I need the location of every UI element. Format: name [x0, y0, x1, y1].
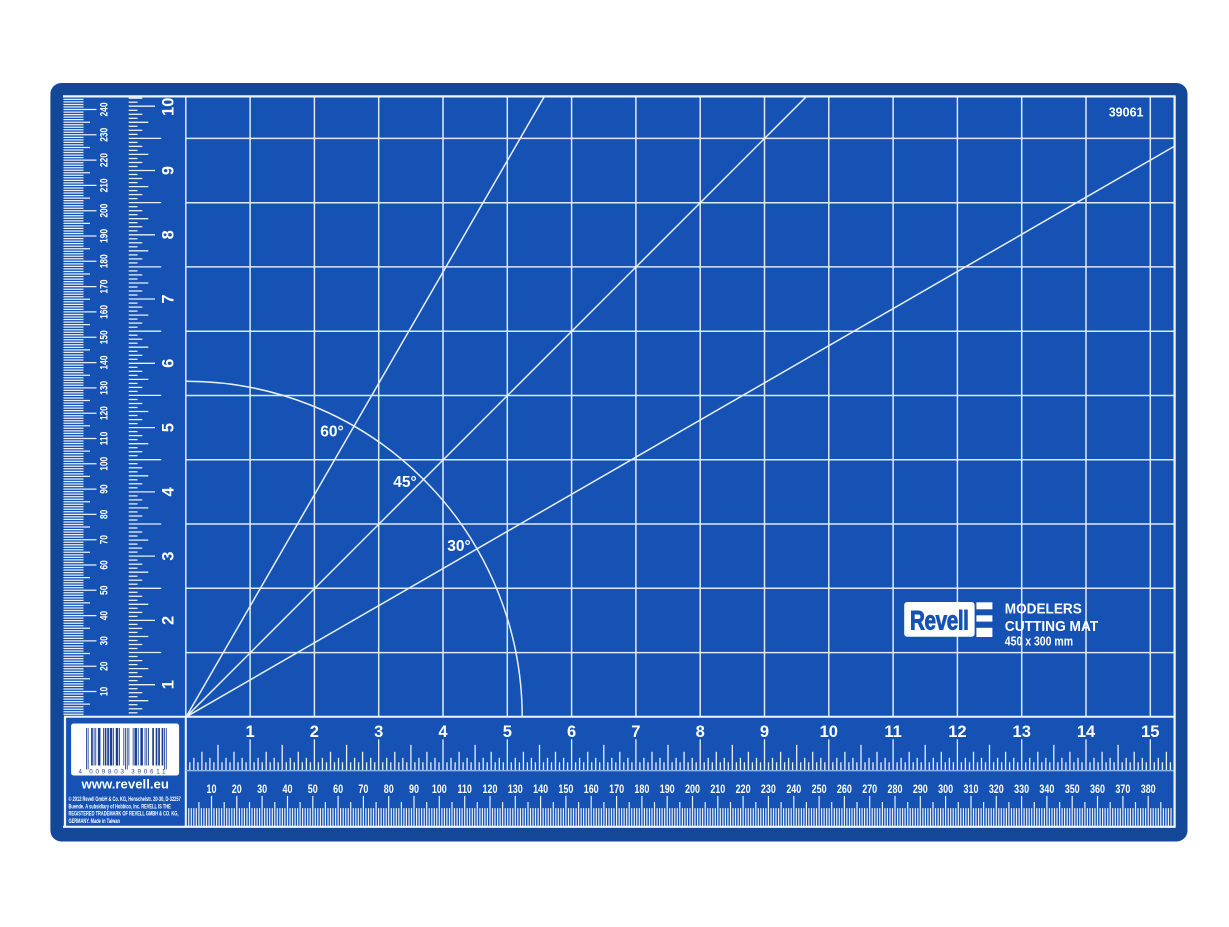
svg-text:180: 180 — [634, 784, 649, 796]
svg-text:4 009803 390611: 4 009803 390611 — [79, 768, 169, 775]
svg-text:370: 370 — [1115, 784, 1130, 796]
svg-text:150: 150 — [98, 330, 110, 344]
svg-text:12: 12 — [948, 723, 966, 741]
svg-text:13: 13 — [1013, 723, 1031, 741]
svg-text:5: 5 — [160, 423, 178, 432]
svg-text:150: 150 — [558, 784, 573, 796]
svg-text:30: 30 — [98, 636, 110, 646]
svg-text:10: 10 — [98, 686, 110, 696]
svg-text:240: 240 — [98, 102, 110, 116]
svg-text:60: 60 — [98, 560, 110, 570]
svg-text:1: 1 — [246, 723, 255, 741]
svg-text:8: 8 — [696, 723, 705, 741]
svg-text:9: 9 — [160, 166, 178, 175]
svg-text:70: 70 — [98, 535, 110, 545]
svg-text:130: 130 — [98, 380, 110, 394]
svg-text:220: 220 — [736, 784, 751, 796]
svg-text:MODELERS: MODELERS — [1005, 600, 1082, 617]
svg-text:Buende. A subsidiary of Hobbic: Buende. A subsidiary of Hobbico, Inc. RE… — [69, 804, 172, 811]
svg-text:210: 210 — [710, 784, 725, 796]
svg-text:4: 4 — [160, 486, 178, 496]
svg-text:360: 360 — [1090, 784, 1105, 796]
svg-text:15: 15 — [1141, 723, 1159, 741]
svg-text:110: 110 — [98, 431, 110, 445]
svg-text:120: 120 — [483, 784, 498, 796]
svg-text:170: 170 — [609, 784, 624, 796]
svg-text:www.revell.eu: www.revell.eu — [80, 777, 168, 792]
svg-text:240: 240 — [786, 784, 801, 796]
svg-text:1: 1 — [160, 680, 178, 689]
svg-text:170: 170 — [98, 279, 110, 293]
svg-text:100: 100 — [98, 456, 110, 470]
svg-text:90: 90 — [409, 784, 419, 796]
svg-text:340: 340 — [1039, 784, 1054, 796]
svg-text:20: 20 — [98, 661, 110, 671]
svg-text:220: 220 — [98, 153, 110, 167]
svg-text:8: 8 — [160, 230, 178, 239]
svg-text:230: 230 — [761, 784, 776, 796]
svg-text:10: 10 — [160, 98, 178, 116]
svg-text:3: 3 — [374, 723, 383, 741]
svg-text:© 2012 Revell GmbH & Co. KG, H: © 2012 Revell GmbH & Co. KG, Henschelstr… — [69, 795, 181, 803]
svg-text:®: ® — [906, 629, 911, 636]
svg-text:140: 140 — [98, 355, 110, 369]
svg-text:Revell: Revell — [910, 606, 969, 636]
svg-text:140: 140 — [533, 784, 548, 796]
svg-text:REGISTERED TRADEMARK OF REVELL: REGISTERED TRADEMARK OF REVELL GMBH & CO… — [69, 811, 179, 818]
svg-text:39061: 39061 — [1109, 106, 1144, 120]
svg-text:160: 160 — [98, 304, 110, 318]
svg-text:50: 50 — [308, 784, 318, 796]
svg-text:180: 180 — [98, 254, 110, 268]
svg-text:10: 10 — [820, 723, 838, 741]
svg-text:40: 40 — [98, 611, 110, 621]
svg-text:320: 320 — [989, 784, 1004, 796]
svg-text:190: 190 — [660, 784, 675, 796]
svg-text:14: 14 — [1077, 723, 1096, 741]
svg-text:2: 2 — [160, 616, 178, 625]
svg-text:5: 5 — [503, 723, 512, 741]
svg-text:45°: 45° — [393, 474, 416, 491]
svg-text:270: 270 — [862, 784, 877, 796]
svg-text:9: 9 — [760, 723, 769, 741]
svg-text:7: 7 — [631, 723, 640, 741]
svg-text:6: 6 — [567, 723, 576, 741]
svg-text:210: 210 — [98, 178, 110, 192]
svg-text:40: 40 — [283, 784, 293, 796]
svg-text:CUTTING MAT: CUTTING MAT — [1005, 618, 1099, 634]
svg-text:60: 60 — [333, 784, 343, 796]
svg-text:310: 310 — [964, 784, 979, 796]
svg-text:300: 300 — [938, 784, 953, 796]
svg-text:380: 380 — [1141, 784, 1156, 796]
svg-text:90: 90 — [98, 484, 110, 494]
svg-text:120: 120 — [98, 406, 110, 420]
svg-text:260: 260 — [837, 784, 852, 796]
svg-text:20: 20 — [232, 784, 242, 796]
svg-text:230: 230 — [98, 127, 110, 141]
svg-text:80: 80 — [98, 509, 110, 519]
svg-text:70: 70 — [358, 784, 368, 796]
svg-text:7: 7 — [160, 294, 178, 303]
svg-text:450 x 300 mm: 450 x 300 mm — [1005, 636, 1073, 649]
svg-text:2: 2 — [310, 723, 319, 741]
svg-text:50: 50 — [98, 585, 110, 595]
svg-text:350: 350 — [1065, 784, 1080, 796]
svg-text:130: 130 — [508, 784, 523, 796]
svg-text:100: 100 — [432, 784, 447, 796]
svg-text:250: 250 — [812, 784, 827, 796]
svg-text:30: 30 — [257, 784, 267, 796]
svg-text:3: 3 — [160, 552, 178, 561]
svg-text:6: 6 — [160, 359, 178, 368]
svg-text:160: 160 — [584, 784, 599, 796]
svg-text:290: 290 — [913, 784, 928, 796]
svg-text:200: 200 — [98, 203, 110, 217]
svg-text:330: 330 — [1014, 784, 1029, 796]
svg-text:110: 110 — [457, 784, 472, 796]
svg-text:11: 11 — [884, 723, 901, 741]
svg-text:4: 4 — [438, 723, 448, 741]
svg-text:10: 10 — [207, 784, 217, 796]
svg-text:80: 80 — [384, 784, 394, 796]
svg-text:30°: 30° — [447, 538, 470, 555]
svg-text:190: 190 — [98, 229, 110, 243]
svg-text:200: 200 — [685, 784, 700, 796]
svg-text:60°: 60° — [320, 424, 343, 441]
svg-text:GERMANY. Made in Taiwan: GERMANY. Made in Taiwan — [69, 818, 120, 825]
svg-text:280: 280 — [888, 784, 903, 796]
